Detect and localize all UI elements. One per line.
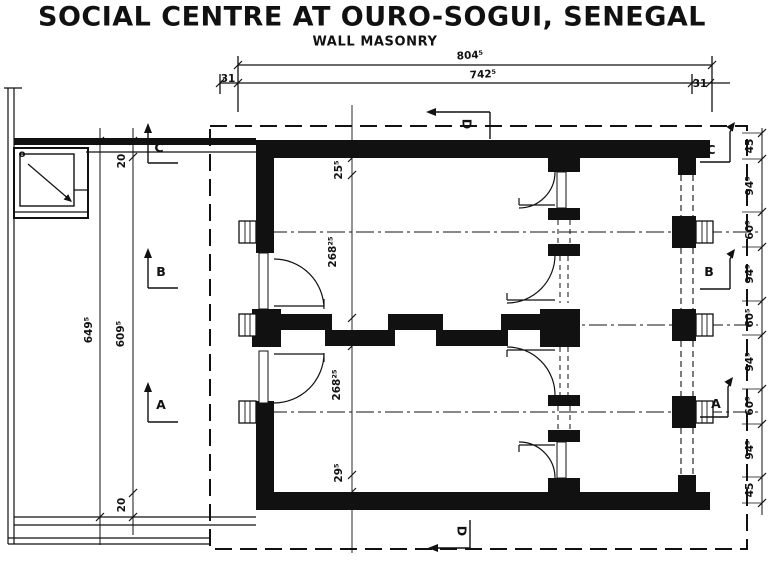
dim-top-right-wall: 31 — [693, 79, 708, 90]
dim-top-clear: 742⁵ — [469, 69, 496, 81]
interior-dimension-line — [348, 105, 356, 553]
dim-left-clear: 609⁵ — [116, 321, 127, 348]
section-letter-b-right: B — [704, 266, 714, 279]
section-letter-c-right: C — [706, 144, 715, 157]
diagonal-arrow — [28, 164, 70, 200]
section-letter-b-left: B — [156, 266, 166, 279]
dim-right-seg-2: 94⁵ — [745, 176, 756, 195]
section-letter-a-left: A — [156, 399, 166, 412]
section-letter-d-bottom: D — [455, 526, 468, 536]
dim-right-seg-6: 94⁵ — [745, 352, 756, 371]
section-letter-d-top: D — [460, 119, 473, 129]
dim-right-seg-9: 45 — [745, 483, 756, 498]
site-boundary-lines — [4, 88, 256, 544]
drawing-sheet: SOCIAL CENTRE AT OURO-SOGUI, SENEGAL WAL… — [0, 0, 780, 562]
dim-right-seg-3: 60⁵ — [745, 220, 756, 239]
dim-left-bottom-wall: 20 — [117, 498, 128, 513]
section-letter-c-left: C — [154, 142, 163, 155]
dim-left-top-wall: 20 — [117, 154, 128, 169]
dim-interior-bottom: 29⁵ — [334, 463, 345, 482]
dim-interior-top: 25⁵ — [334, 160, 345, 179]
section-letter-a-right: A — [711, 398, 721, 411]
dim-right-seg-7: 60⁵ — [745, 396, 756, 415]
dim-top-overall: 804⁵ — [456, 50, 483, 62]
dim-right-seg-1: 45 — [745, 139, 756, 154]
top-dimension-lines — [216, 56, 730, 112]
dim-top-left-wall: 31 — [221, 74, 236, 85]
dim-right-seg-5: 60⁵ — [745, 308, 756, 327]
corner-marker-o: o — [19, 150, 26, 160]
dim-left-overall: 649⁵ — [84, 317, 95, 344]
dim-right-seg-4: 94⁵ — [745, 264, 756, 283]
dim-right-seg-8: 94⁵ — [745, 440, 756, 459]
dim-interior-upper: 268²⁵ — [328, 236, 339, 267]
dim-interior-lower: 268²⁵ — [332, 369, 343, 400]
floor-plan-linework — [0, 0, 780, 562]
